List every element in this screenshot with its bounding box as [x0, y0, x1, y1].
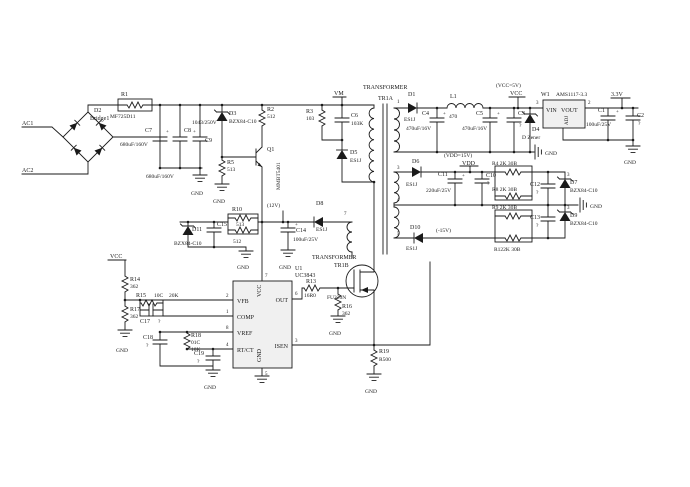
net-ac1: AC1 [22, 121, 33, 127]
label-c8: C8 [184, 128, 191, 134]
u1-pin-vref: VREF [237, 331, 253, 337]
label-r10: R10 [232, 207, 242, 213]
resistor-r3 [319, 110, 325, 126]
label-d3: D3 [229, 111, 236, 117]
w1-pinnum-3: 3 [536, 101, 539, 106]
label-d4-value: D Zener [522, 135, 540, 141]
label-c1-value: 100uF/25V [586, 122, 611, 128]
label-c4-value: 470uF/16V [406, 126, 431, 132]
label-d7: D7 [570, 180, 577, 186]
label-d8: D8 [316, 201, 323, 207]
label-r1-value: MF725D11 [110, 114, 136, 120]
label-c1: C1 [598, 108, 605, 114]
label-r16-value: 362 [342, 311, 351, 317]
label-c10-value: ? [487, 181, 490, 187]
label-r2: R2 [267, 107, 274, 113]
label-d10-value: ES1J [406, 246, 418, 252]
u1-pin-isen: ISEN [275, 344, 289, 350]
label-w1: W1 [541, 92, 550, 98]
u1-pin-comp: COMP [237, 315, 255, 321]
transformer-core [383, 104, 387, 254]
label-r19: R19 [379, 349, 389, 355]
label-c11-value: 220uF/25V [426, 188, 451, 194]
label-d6: D6 [412, 159, 419, 165]
label-c12-value: ? [536, 190, 539, 196]
label-c4: C4 [422, 111, 429, 117]
resistor-r5 [219, 160, 225, 176]
net-vcc-left: VCC [110, 254, 122, 260]
u1-pinnum-3: 3 [295, 339, 298, 344]
label-c1-plus: + [616, 110, 619, 115]
label-c17: C17 [140, 319, 150, 325]
pin-d9-3: 3 [567, 206, 570, 211]
w1-pin-vout: VOUT [561, 108, 578, 114]
gnd-label-3v3: GND [624, 160, 636, 166]
label-r13: R13 [306, 279, 316, 285]
label-c11-plus: + [462, 174, 465, 179]
label-c5-plus: + [497, 112, 500, 117]
label-c14-value: 100uF/25V [293, 237, 318, 243]
u1-pinnum-8: 8 [226, 326, 229, 331]
capacitor-c15 [207, 228, 221, 232]
capacitor-c11 [448, 179, 462, 183]
label-l1: L1 [450, 94, 457, 100]
ic-w1-body [543, 100, 585, 128]
label-u1: U1 [295, 266, 302, 272]
capacitor-c3 [507, 118, 521, 122]
label-c8-value: 680uF/160V [146, 174, 174, 180]
net-labels: AC1 AC2 VM VCC (VCC=5V) VCC (VDD=15V) VD… [22, 82, 624, 260]
capacitor-c19 [206, 356, 220, 360]
label-w1-part: AMS1117-3.3 [556, 92, 587, 98]
label-d6-value: ES1J [406, 182, 418, 188]
gnd-label-15v: GND [590, 204, 602, 210]
capacitor-c14 [281, 228, 295, 232]
net-3v3: 3.3V [611, 92, 624, 98]
mosfet-q2 [346, 265, 378, 297]
resistor-r19 [371, 350, 377, 366]
label-c4-plus: + [443, 112, 446, 117]
label-r4: R4 2K 30B [492, 161, 517, 167]
label-r10-b: 512 [233, 239, 242, 245]
label-d11-value: BZX84-C10 [174, 241, 202, 247]
u1-pinnum-7: 7 [265, 274, 268, 279]
u1-pin-gnd: GND [257, 348, 263, 362]
label-c14-plus: + [295, 223, 298, 228]
label-c5: C5 [476, 111, 483, 117]
net-vcc-top: VCC [510, 91, 522, 97]
label-d4: D4 [532, 127, 539, 133]
label-d5: D5 [350, 150, 357, 156]
label-r3: R3 [306, 109, 313, 115]
gnd-label-c14: GND [279, 265, 291, 271]
capacitor-c6 [335, 118, 349, 122]
label-c18-value: ? [146, 343, 149, 349]
label-r15-value: 20K [169, 293, 179, 299]
label-r13-value: 16R0 [304, 293, 316, 299]
label-q2-part: FU220N [327, 295, 346, 301]
label-d8-value: ES1J [316, 227, 328, 233]
diode-d6 [412, 167, 421, 177]
label-r12: R122K 30B [494, 247, 521, 253]
label-c13-value: ? [536, 223, 539, 229]
net-12v: (12V) [267, 202, 280, 209]
label-c7: C7 [145, 128, 152, 134]
u1-pinnum-4: 4 [226, 343, 229, 348]
capacitor-c4 [430, 118, 444, 122]
u1-pin-out: OUT [276, 298, 289, 304]
net-neg15v: (-15V) [436, 227, 451, 234]
label-l1-value: 470 [449, 114, 458, 120]
label-c7-value: 680uF/160V [120, 142, 148, 148]
gnd-label-c19: GND [204, 385, 216, 391]
transformer-aux-winding [347, 222, 352, 252]
label-r2-value: 512 [267, 114, 276, 120]
diode-d1 [408, 103, 417, 113]
inductor-l1 [447, 104, 483, 109]
label-c11: C11 [438, 172, 448, 178]
label-transformer-top: TRANSFORMER [363, 85, 407, 91]
gnd-label-5v: GND [545, 151, 557, 157]
label-r9: R9 2K 30B [492, 205, 517, 211]
net-vcc5: (VCC=5V) [496, 82, 521, 89]
resistor-r13 [304, 285, 320, 291]
label-tr1a: TR1A [378, 96, 394, 102]
label-r5: R5 [227, 160, 234, 166]
gnd-label-r5: GND [213, 199, 225, 205]
label-c19: C19 [194, 351, 204, 357]
capacitor-c18 [153, 340, 167, 344]
net-vdd: VDD [462, 161, 476, 167]
label-c12: C12 [530, 182, 540, 188]
label-r8: R8 2K 30B [492, 187, 517, 193]
wires-feedback [125, 260, 233, 370]
label-c2: C2 [637, 113, 644, 119]
label-c3: C3 [518, 111, 525, 117]
w1-pin-vin: VIN [546, 108, 557, 114]
wires-aux-supply [180, 211, 352, 258]
label-d2: D2 [94, 108, 101, 114]
label-c19-value: ? [197, 359, 200, 365]
secondary-15v-labels: D6 ES1J C11 + 220uF/25V C10 ? R4 2K 30B … [406, 159, 598, 253]
label-c14: C14 [296, 228, 306, 234]
w1-pinnum-2: 2 [588, 101, 591, 106]
label-r15: R15 [136, 293, 146, 299]
transformer-secondary1-winding [394, 108, 400, 152]
label-d10: D10 [410, 225, 420, 231]
label-r14: R14 [130, 277, 140, 283]
capacitor-c5 [483, 118, 497, 122]
resistor-pair-r4-r8 [495, 166, 532, 200]
pin-tr-7: 7 [344, 212, 347, 217]
label-c5-value: 470uF/16V [462, 126, 487, 132]
u1-pinnum-2: 2 [226, 294, 229, 299]
net-vdd15: (VDD=15V) [444, 152, 472, 159]
label-r10-a: 513 [236, 222, 245, 228]
label-c13: C13 [530, 215, 540, 221]
label-r18-a: 01C [191, 340, 201, 346]
mosfet-labels: FU220N R13 16R0 R16 362 R19 R500 [304, 279, 391, 363]
label-c10: C10 [486, 173, 496, 179]
label-c9-value: 1043/250V [192, 120, 217, 126]
u1-pinnum-1: 1 [226, 310, 229, 315]
label-q1-part: MMBT5401 [276, 162, 282, 190]
resistor-r17 [122, 306, 128, 322]
u1-pinnum-6: 6 [295, 292, 298, 297]
pin-tr-1: 1 [397, 100, 400, 105]
label-r17: R17 [130, 307, 140, 313]
zener-d3 [215, 110, 230, 121]
label-r3-value: 103 [306, 116, 315, 122]
label-d1-value: ES1J [404, 117, 416, 123]
capacitor-c1 [601, 116, 615, 120]
label-r1: R1 [121, 92, 128, 98]
label-c3-value: ? [519, 123, 522, 129]
net-ac2: AC2 [22, 168, 33, 174]
transformer-primary-winding [369, 108, 374, 182]
feedback-labels: R14 362 R17 362 R15 10C 20K C17 ? C18 ? … [130, 277, 204, 365]
w1-pin-adj: ADJ [565, 116, 570, 125]
capacitor-c12 [541, 184, 555, 188]
u1-pin-rtct: RT/CT [237, 348, 254, 354]
resistor-pair-r9-r12 [495, 210, 532, 242]
net-vm: VM [334, 91, 344, 97]
thermistor-r1 [118, 99, 152, 111]
diode-d10 [414, 233, 423, 243]
label-d11: D11 [192, 227, 202, 233]
label-transformer-bot: TRANSFORMER [312, 255, 356, 261]
pin-tr-3: 3 [397, 166, 400, 171]
diode-d8 [314, 217, 323, 227]
label-c15: C15 [217, 222, 227, 228]
resistor-r18 [184, 333, 190, 349]
label-d3-value: BZX84-C10 [229, 119, 257, 125]
label-c8-plus: + [193, 130, 196, 135]
label-r14-value: 362 [130, 284, 139, 290]
gnd-label-r17: GND [116, 348, 128, 354]
resistor-r14 [122, 276, 128, 292]
capacitor-c8 [173, 137, 187, 141]
label-tr1b: TR1B [334, 263, 349, 269]
label-d9-value: BZX84-C10 [570, 221, 598, 227]
label-d2-part: Bridge1 [90, 116, 109, 122]
aux-labels: D11 BZX84-C10 C15 R10 513 512 D8 ES1J C1… [174, 201, 328, 247]
label-d5-value: ES1J [350, 158, 362, 164]
label-c18: C18 [143, 335, 153, 341]
gnd-label-r19: GND [365, 389, 377, 395]
pin-d7-3: 3 [567, 173, 570, 178]
gnd-label-input: GND [191, 191, 203, 197]
gnd-label-r16: GND [329, 331, 341, 337]
label-r17-value: 362 [130, 314, 139, 320]
label-c6: C6 [351, 113, 358, 119]
schematic-canvas: AC1 AC2 VM VCC (VCC=5V) VCC (VDD=15V) VD… [0, 0, 690, 487]
u1-pin-vcc: VCC [257, 285, 263, 297]
capacitor-c13 [541, 217, 555, 221]
label-d7-value: BZX84-C10 [570, 188, 598, 194]
label-c2-value: ? [638, 121, 641, 127]
label-d1: D1 [408, 92, 415, 98]
label-c17-value: ? [158, 319, 161, 325]
gnd-label-d11: GND [237, 265, 249, 271]
label-u1-part: UC3843 [295, 273, 315, 279]
transformer-labels: TRANSFORMER TR1A TRANSFORMER TR1B 1 3 4 … [312, 85, 407, 269]
schematic-page: AC1 AC2 VM VCC (VCC=5V) VCC (VDD=15V) VD… [0, 0, 690, 487]
label-r16: R16 [342, 304, 352, 310]
label-r15-a: 10C [154, 293, 164, 299]
label-d9: D9 [570, 213, 577, 219]
network-r15-c17 [140, 300, 163, 316]
diode-d5 [337, 150, 348, 159]
resistor-r2 [259, 110, 265, 126]
label-c9: C9 [205, 138, 212, 144]
label-r18: R18 [191, 333, 201, 339]
label-c6-value: 103K [351, 121, 363, 127]
label-r5-value: 513 [227, 167, 236, 173]
label-c7-plus: + [166, 130, 169, 135]
label-q1: Q1 [267, 147, 274, 153]
label-r19-value: R500 [379, 357, 391, 363]
u1-pin-vfb: VFB [237, 299, 249, 305]
